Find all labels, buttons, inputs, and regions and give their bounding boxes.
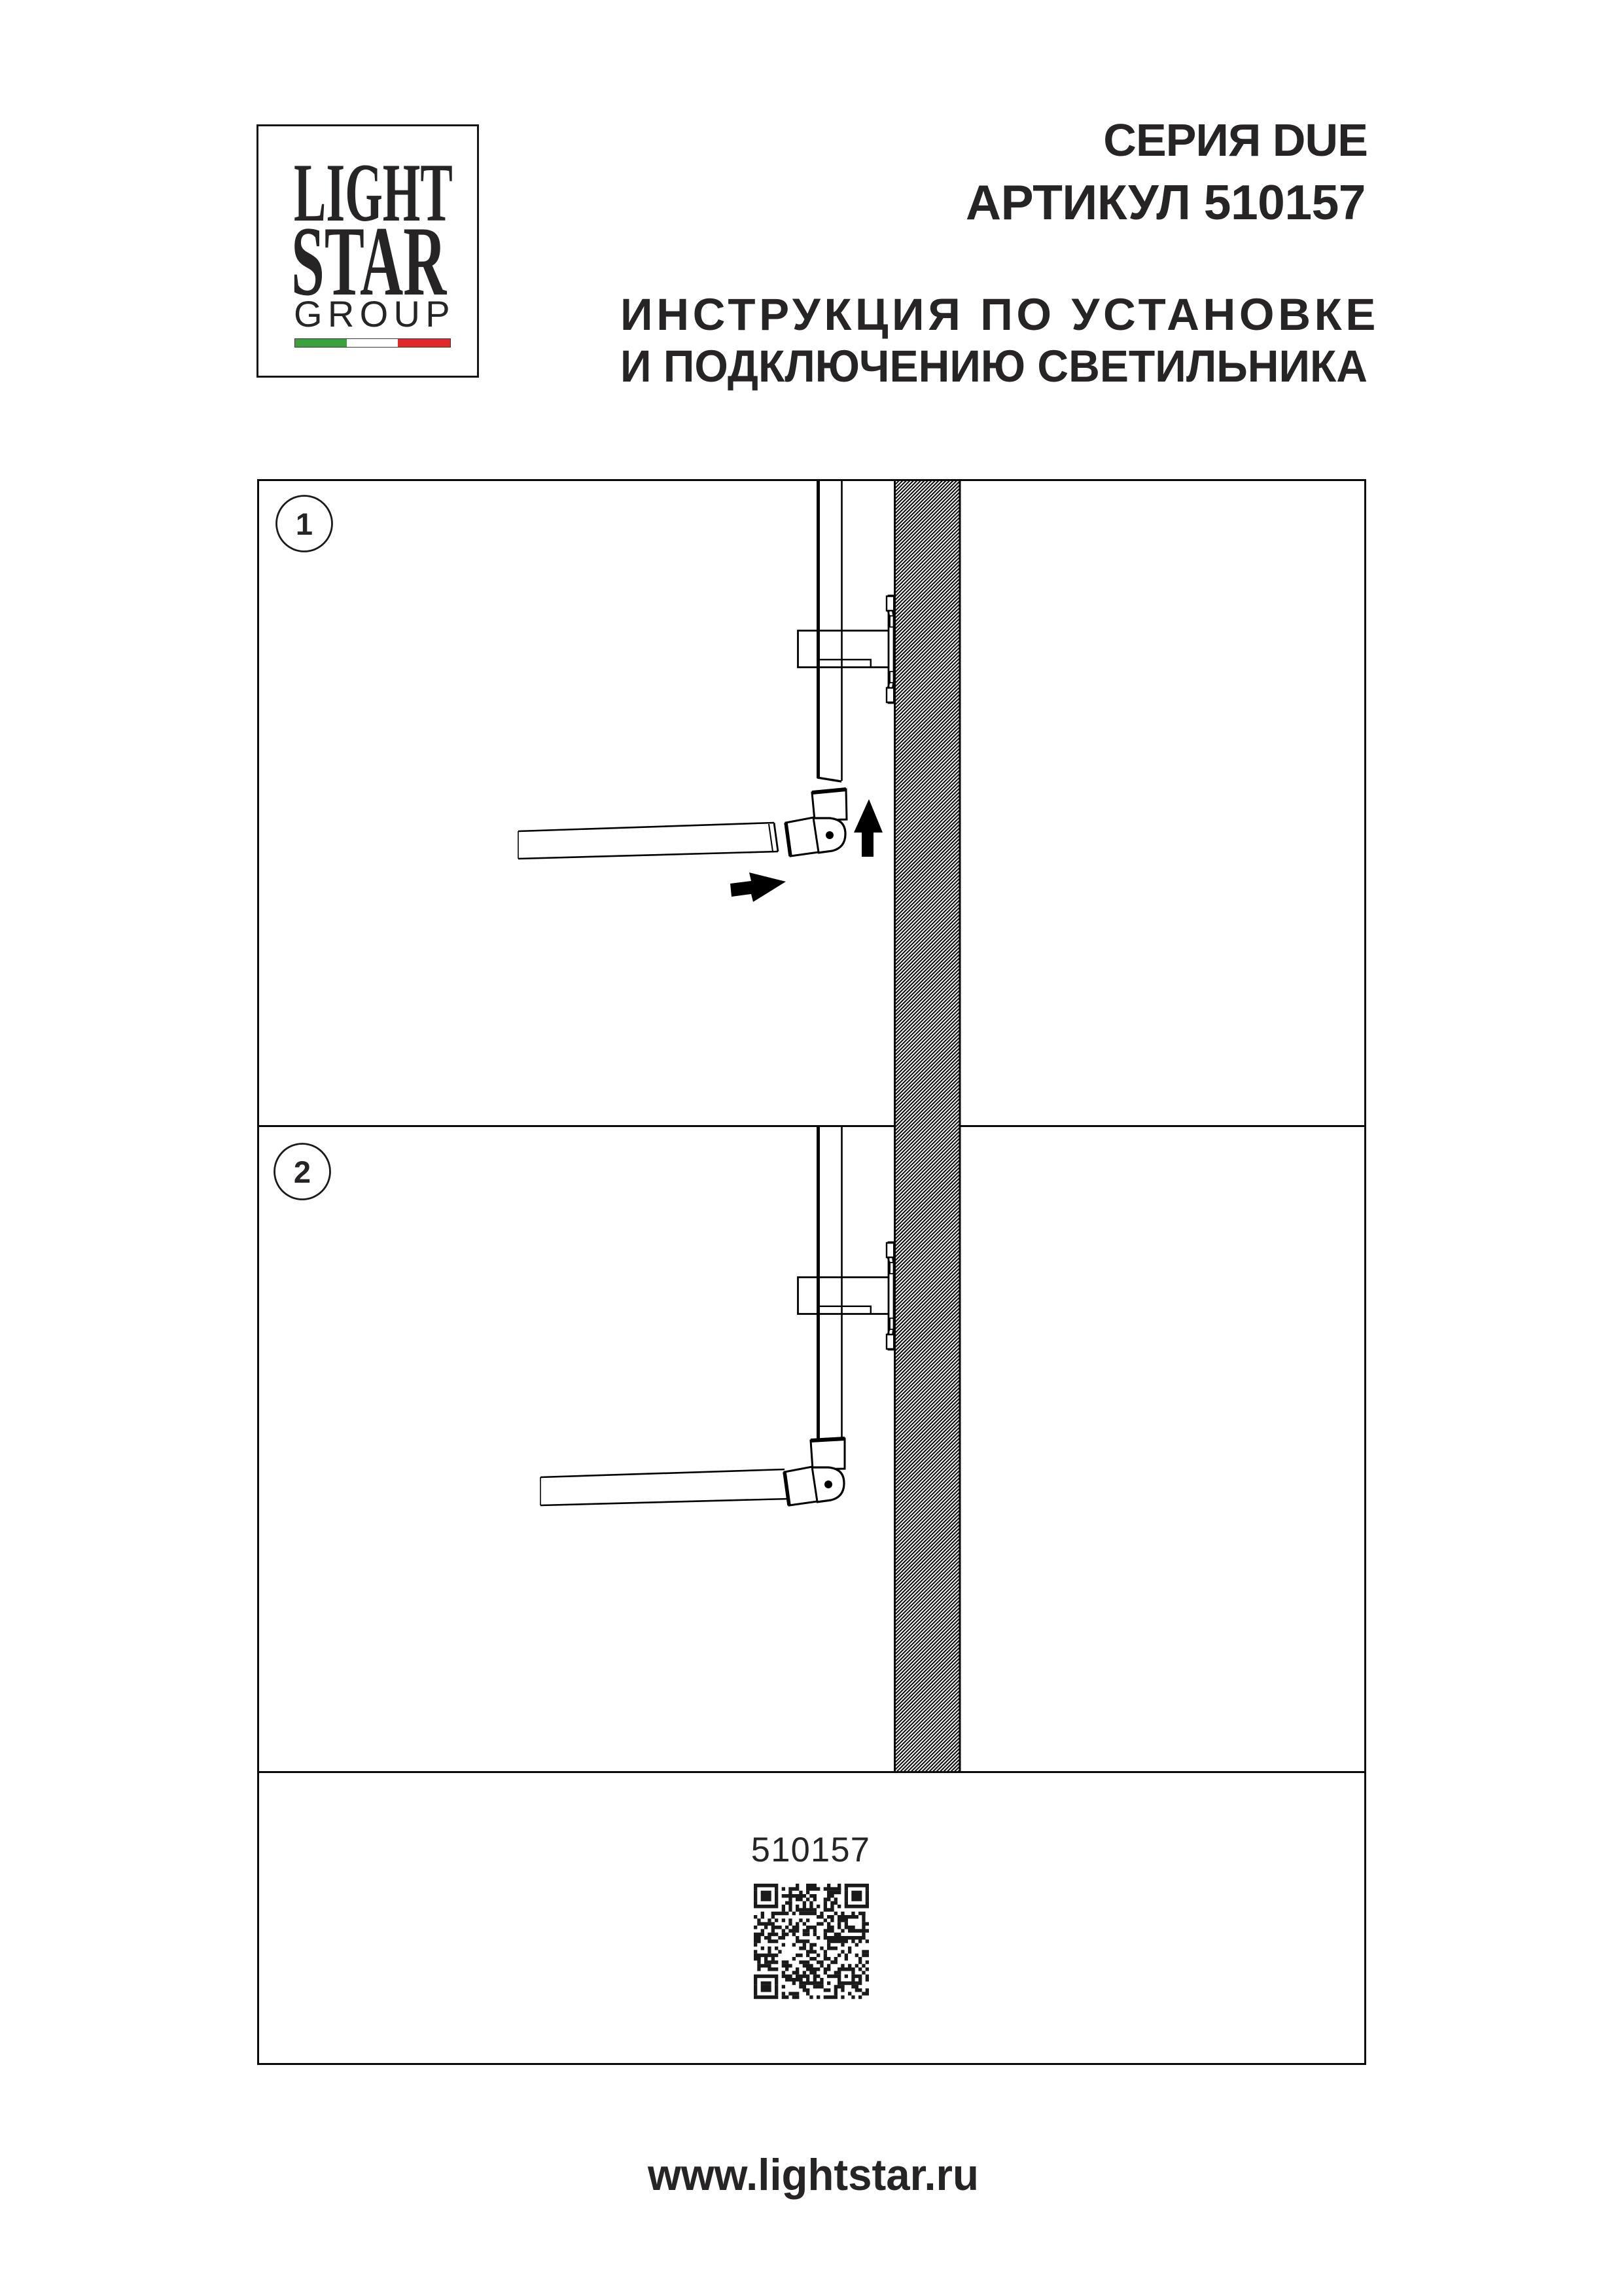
svg-text:510157: 510157: [751, 1831, 870, 1869]
svg-text:1: 1: [296, 507, 313, 541]
svg-text:2: 2: [294, 1155, 311, 1189]
